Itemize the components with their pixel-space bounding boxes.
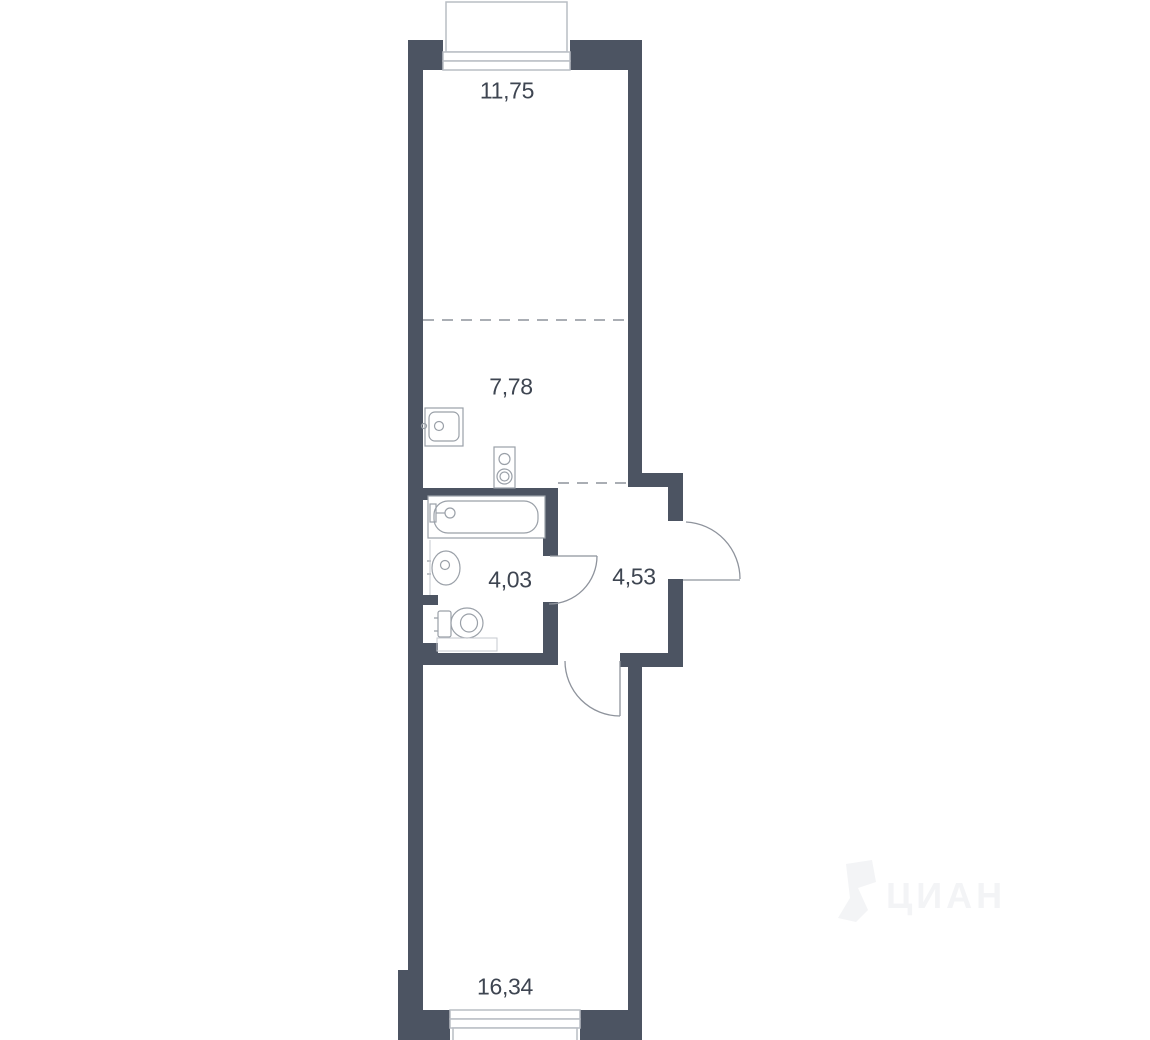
bathroom-door-arc — [549, 556, 597, 604]
bathtub-outer — [428, 496, 545, 538]
floor-plan-drawing — [0, 0, 1150, 1040]
wash-basin — [427, 551, 460, 585]
area-label-room-bottom: 16,34 — [477, 974, 533, 1001]
wall-bottom-left — [398, 1010, 450, 1040]
entrance-door-arc — [686, 522, 740, 579]
window-top-band-inner — [443, 61, 570, 70]
area-label-kitchen: 7,78 — [489, 374, 533, 401]
kitchen-sink — [422, 408, 464, 446]
toilet-tank — [438, 611, 451, 637]
balcony-bottom — [453, 1028, 577, 1040]
area-label-room-top: 11,75 — [480, 78, 534, 105]
bathtub — [428, 496, 545, 538]
room-door-arc — [565, 661, 620, 716]
balcony-top — [446, 2, 567, 52]
toilet — [434, 608, 483, 638]
floor-plan: 11,75 7,78 4,03 4,53 16,34 ЦИАН — [0, 0, 1150, 1040]
walls — [398, 40, 683, 1040]
wall-hall-top — [628, 473, 683, 487]
wall-hall-right-upper — [668, 487, 683, 521]
bathroom-shelf-outline — [437, 638, 497, 651]
wall-bathroom-bottom — [408, 653, 558, 665]
wall-left — [408, 40, 423, 975]
wall-right-upper — [628, 40, 642, 477]
stove — [494, 447, 515, 488]
wall-bathroom-stub-upper — [423, 595, 438, 605]
basin-bowl — [432, 551, 460, 585]
window-bottom-band-outer — [450, 1019, 580, 1028]
wall-hall-bottom — [620, 653, 683, 667]
wall-bathroom-stub-lower — [423, 643, 438, 653]
wall-hall-right-lower — [668, 579, 683, 655]
area-label-hallway: 4,53 — [612, 564, 656, 591]
window-top-band-outer — [443, 52, 570, 61]
doors — [549, 522, 740, 716]
wall-right-lower — [628, 667, 642, 1040]
window-bottom-band-inner — [450, 1010, 580, 1019]
zone-boundaries — [423, 320, 628, 483]
area-label-bathroom: 4,03 — [488, 567, 532, 594]
toilet-bowl — [451, 608, 483, 638]
